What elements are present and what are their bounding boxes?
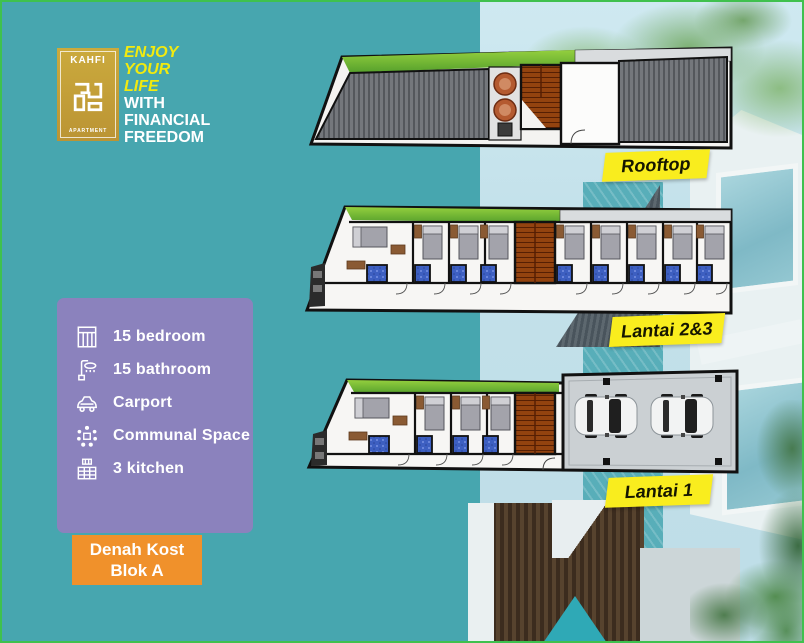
tagline-line: FINANCIAL <box>124 112 254 129</box>
cta-line1: Denah Kost <box>78 539 196 560</box>
lantai-1-label: Lantai 1 <box>605 474 713 508</box>
denah-kost-button[interactable]: Denah Kost Blok A <box>72 535 202 585</box>
floor-label-text: Rooftop <box>620 154 692 177</box>
feature-row-communal: Communal Space <box>74 419 253 452</box>
shower-icon <box>74 357 100 383</box>
kitchen-icon <box>74 456 100 482</box>
rooftop-floor-plan <box>303 38 743 160</box>
feature-row-bathroom: 15 bathroom <box>74 353 253 386</box>
rooftop-label: Rooftop <box>602 149 710 182</box>
feature-label: 15 bedroom <box>113 328 206 346</box>
floor-label-text: Lantai 2&3 <box>620 318 714 342</box>
tagline-line: ENJOY <box>124 44 254 61</box>
people-icon <box>74 423 100 449</box>
feature-label: 3 kitchen <box>113 460 184 478</box>
building-pillar-photo <box>468 503 494 643</box>
car-icon <box>74 390 100 416</box>
tree-foliage-photo <box>690 550 804 643</box>
logo-title: KAHFI <box>70 55 106 66</box>
tagline-line: WITH <box>124 95 254 112</box>
tagline-line: YOUR <box>124 61 254 78</box>
building-stairs-photo <box>552 500 638 558</box>
tagline-line: FREEDOM <box>124 129 254 146</box>
features-panel: 15 bedroom 15 bathroom <box>57 298 253 533</box>
flyer-canvas: KAHFI APARTMENT ENJOY YOUR LIFE WITH FIN… <box>0 0 804 643</box>
lantai-2-3-floor-plan <box>303 203 743 318</box>
floor-label-text: Lantai 1 <box>624 479 695 502</box>
lantai-1-floor-plan <box>303 366 743 481</box>
feature-label: Communal Space <box>113 427 250 445</box>
kufic-emblem-icon <box>72 80 104 114</box>
feature-row-carport: Carport <box>74 386 253 419</box>
feature-label: 15 bathroom <box>113 361 211 379</box>
cta-line2: Blok A <box>78 560 196 581</box>
bed-icon <box>74 324 100 350</box>
feature-row-kitchen: 3 kitchen <box>74 452 253 485</box>
feature-row-bedroom: 15 bedroom <box>74 320 253 353</box>
lantai-2-3-label: Lantai 2&3 <box>609 313 725 347</box>
logo-subtitle: APARTMENT <box>69 128 107 134</box>
tagline: ENJOY YOUR LIFE WITH FINANCIAL FREEDOM <box>124 44 254 146</box>
feature-label: Carport <box>113 394 172 412</box>
kahfi-logo: KAHFI APARTMENT <box>57 48 119 141</box>
tagline-line: LIFE <box>124 78 254 95</box>
